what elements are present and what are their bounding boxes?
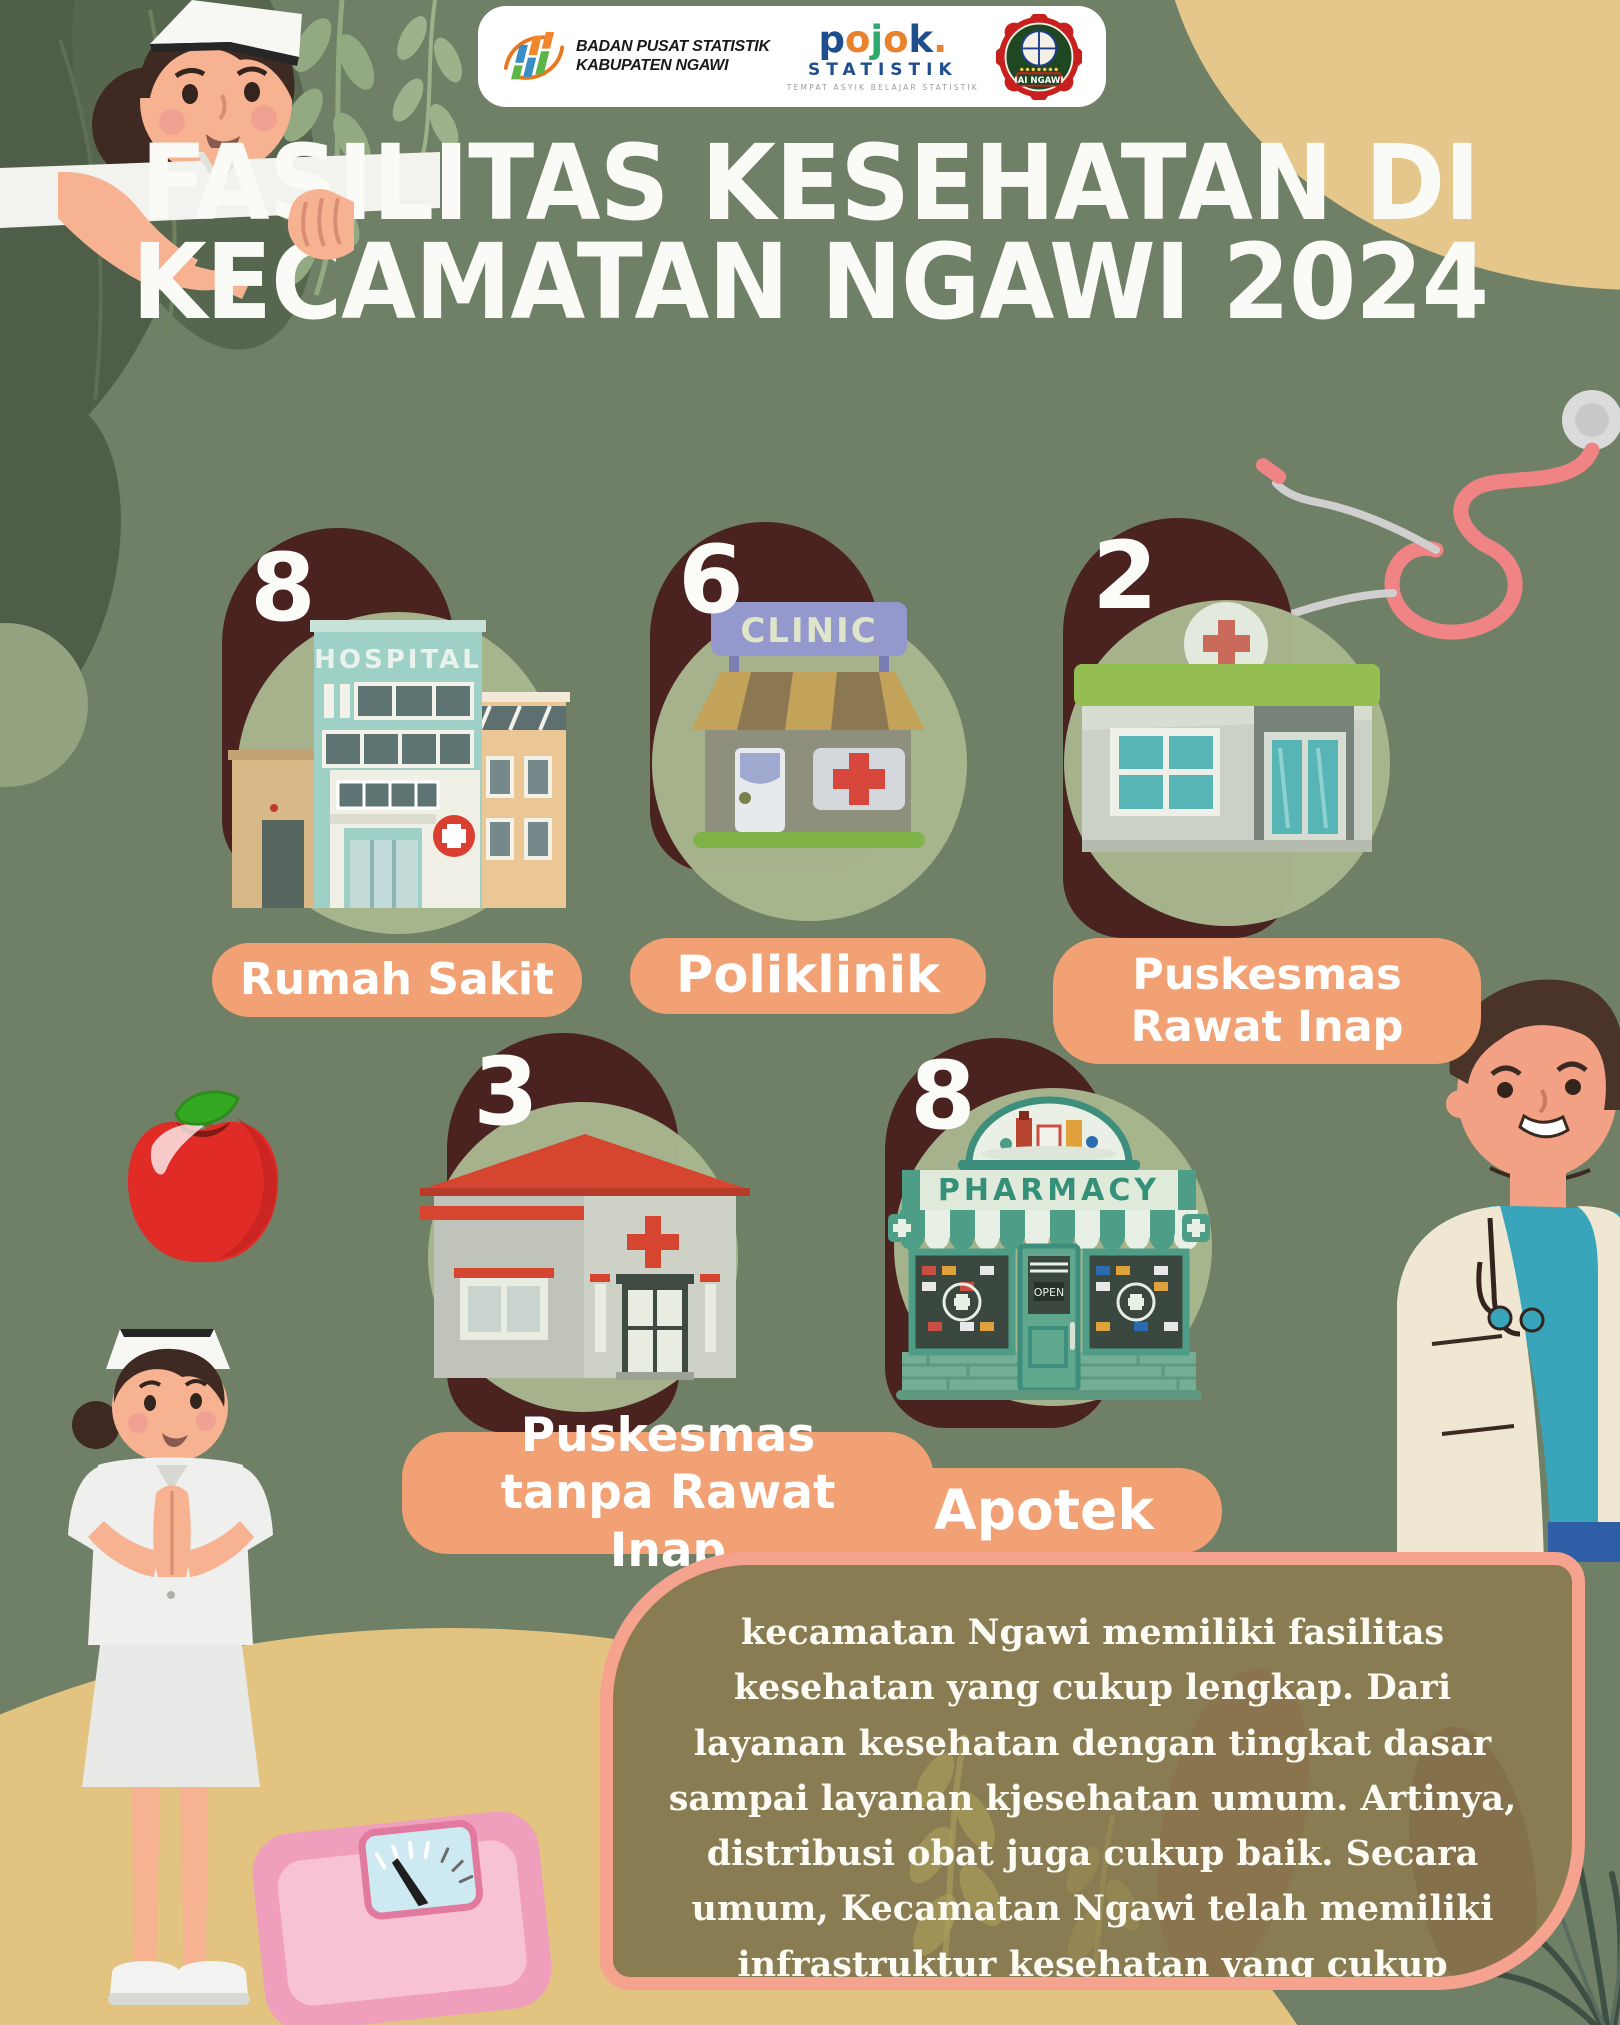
- puskesmas-tanpa-rawat-inap-illustration: [420, 1128, 750, 1388]
- pojok-wordmark: pojok.: [818, 21, 947, 58]
- stat-value-poliklinik: 6: [656, 534, 766, 628]
- weight-scale-illustration: [242, 1803, 562, 2025]
- stat-label-puskesmas-rawat-inap: Puskesmas Rawat Inap: [1053, 938, 1481, 1064]
- stat-value-apotek: 8: [890, 1050, 996, 1144]
- bps-name-line1: BADAN PUSAT STATISTIK: [576, 38, 770, 56]
- stat-value-puskesmas-rawat-inap: 2: [1070, 530, 1180, 624]
- poster-title: FASILITAS KESEHATAN DI KECAMATAN NGAWI 2…: [0, 134, 1620, 332]
- stat-label-rumah-sakit: Rumah Sakit: [212, 943, 582, 1017]
- puskesmas-rawat-inap-illustration: [1066, 598, 1388, 878]
- stat-value-puskesmas-tanpa: 3: [452, 1046, 560, 1140]
- hospital-illustration: HOSPITAL: [222, 608, 572, 908]
- pojok-tagline: TEMPAT ASYIK BELAJAR STATISTIK: [787, 84, 979, 92]
- clinic-illustration: CLINIC: [663, 602, 953, 862]
- apple-illustration: [118, 1088, 288, 1273]
- bps-name-line2: KABUPATEN NGAWI: [576, 57, 770, 75]
- pharmacy-open-sign: OPEN: [1034, 1286, 1064, 1299]
- nurse-hand-gripping-title: [282, 184, 356, 278]
- stat-label-apotek: Apotek: [866, 1468, 1222, 1554]
- iai-ngawi-seal: IAI NGAWI: [996, 14, 1082, 100]
- stat-label-poliklinik: Poliklinik: [630, 938, 986, 1014]
- stat-label-puskesmas-tanpa: Puskesmas tanpa Rawat Inap: [402, 1432, 934, 1554]
- summary-paragraph: kecamatan Ngawi memiliki fasilitas keseh…: [613, 1565, 1572, 1990]
- pharmacy-sign-text: PHARMACY: [938, 1173, 1160, 1208]
- infographic-poster: BADAN PUSAT STATISTIK KABUPATEN NGAWI po…: [0, 0, 1620, 2025]
- logo-header-bar: BADAN PUSAT STATISTIK KABUPATEN NGAWI po…: [478, 6, 1106, 107]
- summary-box: kecamatan Ngawi memiliki fasilitas keseh…: [600, 1552, 1585, 1990]
- bps-logo: BADAN PUSAT STATISTIK KABUPATEN NGAWI: [502, 28, 770, 86]
- bps-logo-text: BADAN PUSAT STATISTIK KABUPATEN NGAWI: [576, 38, 770, 75]
- pojok-statistik-logo: pojok. STATISTIK TEMPAT ASYIK BELAJAR ST…: [787, 21, 979, 92]
- pojok-subtitle: STATISTIK: [808, 62, 958, 79]
- bps-logo-icon: [502, 28, 566, 86]
- hospital-sign-text: HOSPITAL: [314, 645, 482, 675]
- iai-ngawi-label: IAI NGAWI: [1014, 75, 1063, 85]
- stat-value-rumah-sakit: 8: [228, 542, 338, 636]
